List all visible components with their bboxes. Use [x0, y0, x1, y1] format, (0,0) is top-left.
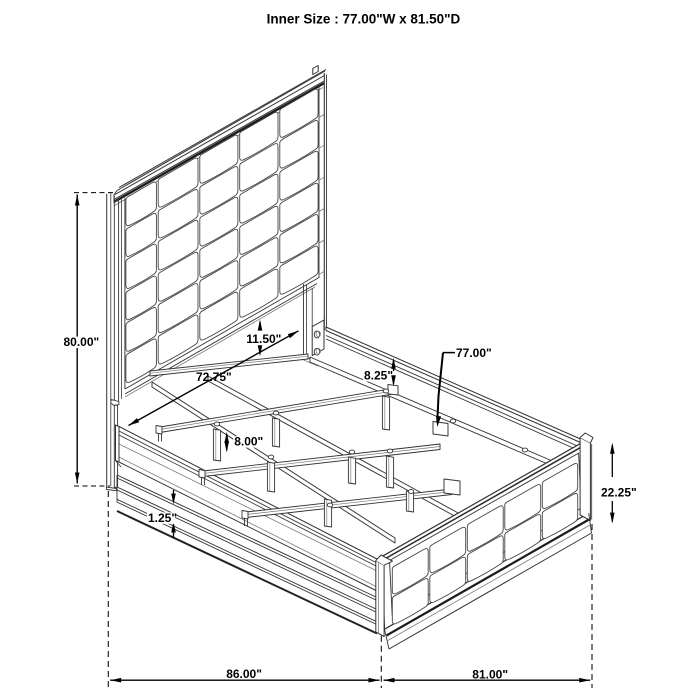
svg-text:22.25": 22.25" [601, 486, 637, 500]
svg-text:8.25": 8.25" [364, 369, 393, 383]
svg-text:86.00": 86.00" [226, 667, 262, 681]
svg-text:72.75": 72.75" [196, 370, 232, 384]
svg-text:80.00": 80.00" [64, 335, 100, 349]
svg-text:1.25": 1.25" [148, 511, 177, 525]
svg-text:11.50": 11.50" [246, 332, 281, 346]
svg-text:77.00": 77.00" [456, 346, 492, 360]
svg-text:81.00": 81.00" [472, 668, 508, 682]
svg-text:Inner Size : 77.00"W x 81.50"D: Inner Size : 77.00"W x 81.50"D [267, 12, 461, 27]
svg-text:8.00": 8.00" [234, 435, 263, 449]
